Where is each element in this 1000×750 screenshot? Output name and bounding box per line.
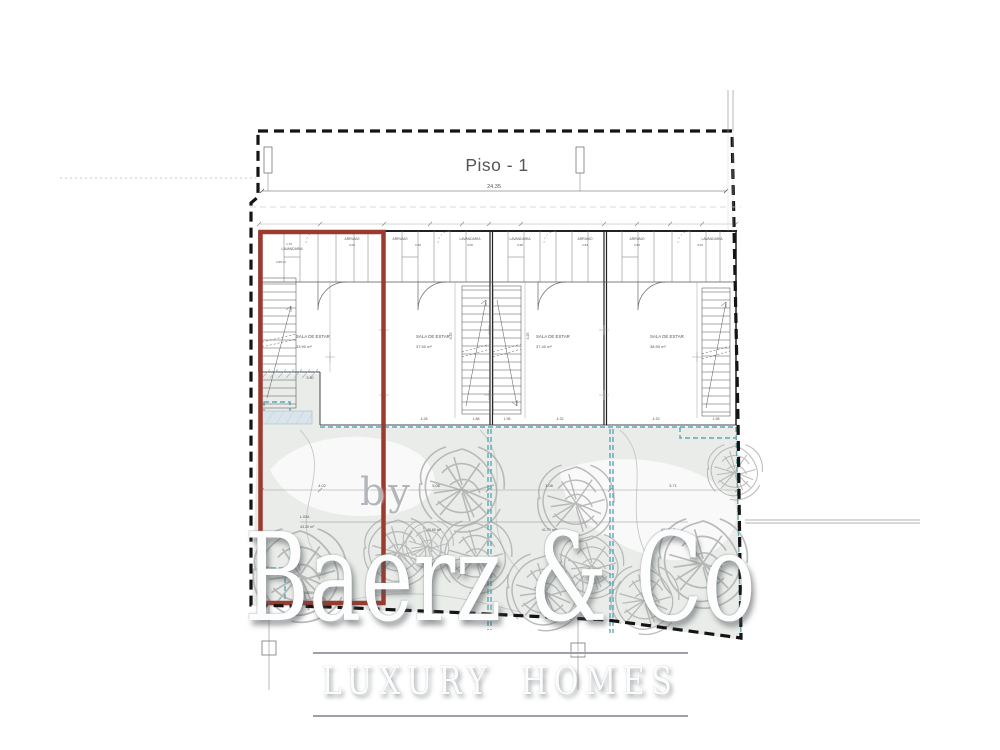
dim-label: 1.70: [286, 242, 292, 246]
dim-label: 2.84: [582, 243, 588, 247]
side-dim: 4.25: [449, 333, 453, 340]
overall-dimension-line: 24.35: [260, 184, 728, 193]
closet-label: LAVANDARIA: [510, 237, 532, 241]
stair-dim: 1.98: [504, 417, 511, 421]
building-units: LAVANDARIA ARRUMO ARRUMO LAVANDARIA LAVA…: [257, 222, 738, 425]
watermark-divider-top: [313, 652, 688, 654]
dim-label: 3.03: [697, 243, 703, 247]
overall-dimension-label: 24.35: [487, 184, 501, 190]
closet-label: ARRUMO: [344, 237, 359, 241]
closet-label: LAVANDARIA: [460, 237, 482, 241]
living-room-label: SALA DE ESTAR: [536, 334, 570, 339]
dim-label: 0.60: [415, 243, 421, 247]
closet-label: LAVANDARIA: [702, 237, 724, 241]
stairs-unit-4: [702, 288, 730, 416]
garden-width-dim: 4.02: [318, 484, 325, 488]
room-labels: LAVANDARIA ARRUMO ARRUMO LAVANDARIA LAVA…: [276, 237, 723, 349]
closet-label: ARRUMO: [392, 237, 407, 241]
living-room-area: 37.50 m²: [416, 344, 432, 349]
watermark-tagline: LUXURY HOMES: [322, 659, 679, 705]
closet-label: ARRUMO: [629, 237, 644, 241]
garden-width-dim: 3.71: [669, 484, 676, 488]
unit-width-dim: 4.33: [653, 417, 660, 421]
dim-label: 0.60: [634, 243, 640, 247]
top-dimension-chain: [257, 222, 738, 226]
dim-label: 3.05: [467, 243, 473, 247]
unit-width-dim: 4.32: [557, 417, 564, 421]
stairs-unit-3: [493, 286, 521, 414]
stair-dim: 1.98: [713, 417, 720, 421]
dim-label: 3.03: [349, 243, 355, 247]
dim-label: 0.98: [517, 243, 523, 247]
section-marker: [576, 147, 584, 173]
watermark-brand: Baerz & Co: [244, 517, 755, 639]
garden-width-dim: 5.08: [432, 484, 439, 488]
unit-width-dim: 5.30: [307, 376, 314, 380]
watermark-divider-bottom: [313, 715, 688, 717]
closet-area: 3.55 m²: [276, 260, 286, 264]
closet-label: ARRUMO: [577, 237, 592, 241]
section-marker: [264, 147, 272, 173]
garden-width-dim: 3.08: [545, 484, 552, 488]
building-walls: [259, 231, 737, 425]
living-room-label: SALA DE ESTAR: [296, 334, 330, 339]
living-room-label: SALA DE ESTAR: [650, 334, 684, 339]
side-dim: 4.25: [526, 333, 530, 340]
living-room-label: SALA DE ESTAR: [416, 334, 450, 339]
closet-label: LAVANDARIA: [282, 247, 304, 251]
plan-title: Piso - 1: [465, 155, 528, 175]
stair-dim: 1.88: [473, 417, 480, 421]
living-room-area: 33.90 m²: [296, 344, 312, 349]
living-room-area: 38.90 m²: [650, 344, 666, 349]
floor-plan-page: 4.02 5.08 3.08 3.71 L.02A 43.20 m² 40.60…: [0, 0, 1000, 750]
unit-width-dim: 4.28: [421, 417, 428, 421]
living-room-area: 37.40 m²: [536, 344, 552, 349]
